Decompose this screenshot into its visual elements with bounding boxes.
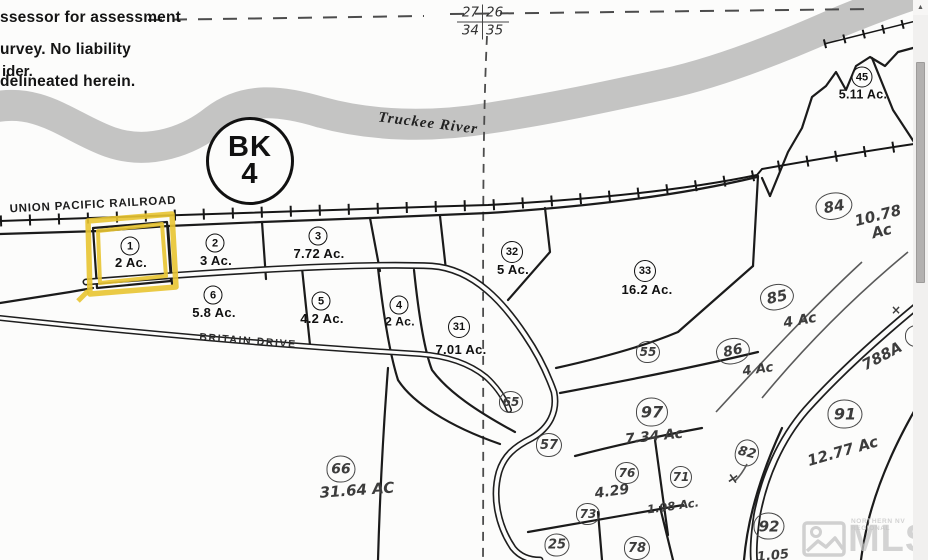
parcel-number-2: 2 [206, 234, 225, 253]
parcel-acreage-33: 16.2 Ac. [621, 283, 672, 297]
parcel-number-71: 71 [670, 466, 692, 488]
disclaimer-text: ssessor for assessment urvey. No liabili… [0, 0, 181, 106]
parcel-number-55: 55 [636, 341, 660, 363]
parcel-acreage-45: 5.11 Ac. [839, 88, 888, 101]
parcel-number-73: 73 [576, 503, 600, 525]
map-viewer: ssessor for assessment urvey. No liabili… [0, 0, 928, 560]
scrollbar-up-arrow[interactable]: ▲ [913, 0, 928, 15]
parcel-number-5: 5 [312, 292, 331, 311]
book-badge: BK 4 [206, 117, 294, 205]
parcel-number-57: 57 [536, 433, 562, 457]
parcel-acreage-5: 4.2 Ac. [300, 312, 344, 326]
section-corner-numbers: 27 26 34 35 [457, 5, 509, 40]
parcel-number-97: 97 [636, 398, 668, 427]
vertical-scrollbar[interactable]: ▲ [913, 0, 928, 560]
disclaimer-fragment: ider. [2, 63, 33, 80]
parcel-acreage-3: 7.72 Ac. [293, 247, 344, 261]
parcel-acreage-4: 2 Ac. [385, 316, 415, 329]
parcel-number-4: 4 [390, 296, 409, 315]
parcel-acreage-32: 5 Ac. [497, 263, 529, 277]
map-note-3: × [891, 303, 901, 317]
scrollbar-thumb[interactable] [916, 62, 925, 283]
parcel-number-45: 45 [852, 67, 873, 88]
parcel-number-78: 78 [624, 536, 650, 560]
parcel-acreage-2: 3 Ac. [200, 254, 232, 268]
parcel-acreage-6: 5.8 Ac. [192, 306, 236, 320]
parcel-number-91: 91 [828, 400, 863, 429]
parcel-number-66: 66 [327, 456, 356, 483]
parcel-number-32: 32 [501, 241, 523, 263]
map-note-1: 1.05 [756, 547, 789, 560]
parcel-number-33: 33 [634, 260, 656, 282]
parcel-number-92: 92 [754, 513, 785, 540]
parcel-number-1: 1 [121, 237, 140, 256]
parcel-acreage-1: 2 Ac. [115, 256, 147, 270]
image-icon [802, 521, 846, 557]
parcel-number-6: 6 [204, 286, 223, 305]
parcel-acreage-31: 7.01 Ac. [435, 343, 486, 357]
parcel-number-3: 3 [309, 227, 328, 246]
parcel-number-25: 25 [545, 534, 570, 557]
roads [0, 265, 928, 560]
parcel-number-31: 31 [448, 316, 470, 338]
parcel-number-65: 65 [499, 391, 523, 413]
mls-watermark: NORTHERN NV REGIONAL MLS [796, 512, 928, 560]
